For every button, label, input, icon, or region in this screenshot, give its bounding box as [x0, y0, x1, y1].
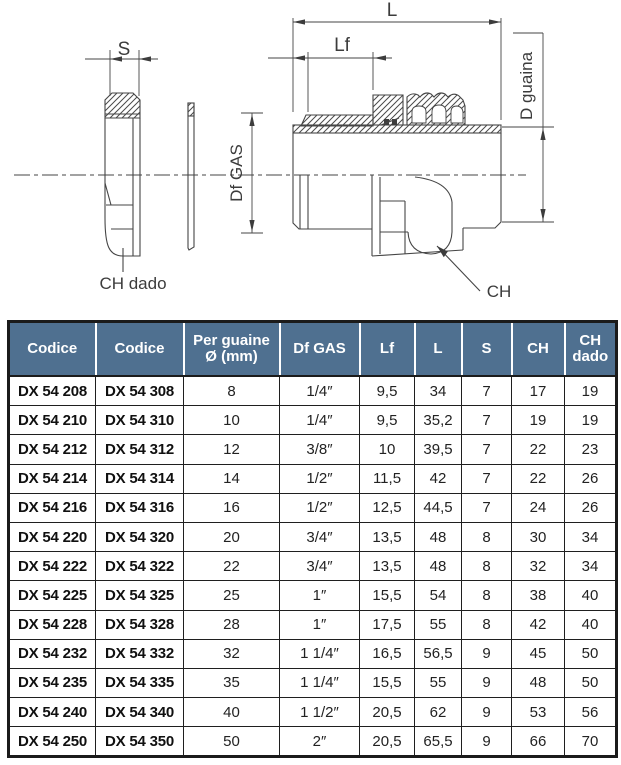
ch-dado-label: CH dado	[99, 274, 166, 293]
code-cell: DX 54 228	[9, 610, 96, 639]
value-cell: 20,5	[360, 727, 415, 757]
value-cell: 70	[565, 727, 617, 757]
value-cell: 19	[565, 376, 617, 406]
value-cell: 20,5	[360, 698, 415, 727]
code-cell: DX 54 232	[9, 639, 96, 668]
value-cell: 44,5	[415, 493, 462, 522]
code-cell: DX 54 335	[96, 668, 184, 697]
code-cell: DX 54 340	[96, 698, 184, 727]
table-row: DX 54 225DX 54 325251″15,55483840	[9, 581, 617, 610]
value-cell: 24	[512, 493, 565, 522]
value-cell: 55	[415, 668, 462, 697]
value-cell: 9	[462, 698, 512, 727]
value-cell: 8	[462, 522, 512, 551]
value-cell: 1/2″	[280, 464, 360, 493]
column-header-df-gas: Df GAS	[280, 322, 360, 377]
value-cell: 26	[565, 493, 617, 522]
value-cell: 19	[512, 406, 565, 435]
value-cell: 1 1/4″	[280, 639, 360, 668]
value-cell: 50	[565, 668, 617, 697]
value-cell: 22	[512, 435, 565, 464]
column-header-l: L	[415, 322, 462, 377]
flange-strip	[301, 115, 373, 126]
dim-df-gas-label: Df GAS	[227, 144, 246, 202]
value-cell: 39,5	[415, 435, 462, 464]
technical-drawing: S L Lf Df GAS D guaina CH CH dado	[0, 0, 621, 318]
value-cell: 56	[565, 698, 617, 727]
value-cell: 16,5	[360, 639, 415, 668]
value-cell: 7	[462, 406, 512, 435]
value-cell: 20	[184, 522, 280, 551]
value-cell: 8	[462, 581, 512, 610]
table-row: DX 54 228DX 54 328281″17,55584240	[9, 610, 617, 639]
code-cell: DX 54 222	[9, 552, 96, 581]
value-cell: 1/4″	[280, 376, 360, 406]
column-header-s: S	[462, 322, 512, 377]
value-cell: 1/2″	[280, 493, 360, 522]
table-row: DX 54 222DX 54 322223/4″13,54883234	[9, 552, 617, 581]
value-cell: 28	[184, 610, 280, 639]
code-cell: DX 54 328	[96, 610, 184, 639]
value-cell: 42	[512, 610, 565, 639]
code-cell: DX 54 320	[96, 522, 184, 551]
value-cell: 66	[512, 727, 565, 757]
value-cell: 65,5	[415, 727, 462, 757]
table-row: DX 54 210DX 54 310101/4″9,535,271919	[9, 406, 617, 435]
value-cell: 25	[184, 581, 280, 610]
value-cell: 38	[512, 581, 565, 610]
code-cell: DX 54 225	[9, 581, 96, 610]
value-cell: 3/8″	[280, 435, 360, 464]
value-cell: 1 1/2″	[280, 698, 360, 727]
value-cell: 7	[462, 376, 512, 406]
value-cell: 7	[462, 493, 512, 522]
value-cell: 19	[565, 406, 617, 435]
column-header-per-guaine: Per guaine Ø (mm)	[184, 322, 280, 377]
table-body: DX 54 208DX 54 30881/4″9,53471719DX 54 2…	[9, 376, 617, 757]
value-cell: 48	[415, 522, 462, 551]
value-cell: 1/4″	[280, 406, 360, 435]
code-cell: DX 54 316	[96, 493, 184, 522]
column-header-ch-dado: CH dado	[565, 322, 617, 377]
dimension-arrows	[110, 19, 546, 257]
code-cell: DX 54 216	[9, 493, 96, 522]
value-cell: 22	[184, 552, 280, 581]
value-cell: 9	[462, 668, 512, 697]
code-cell: DX 54 312	[96, 435, 184, 464]
dim-l-label: L	[387, 0, 398, 21]
code-cell: DX 54 208	[9, 376, 96, 406]
code-cell: DX 54 250	[9, 727, 96, 757]
gland-drawing-svg: S L Lf Df GAS D guaina CH CH dado	[0, 0, 621, 318]
value-cell: 17	[512, 376, 565, 406]
code-cell: DX 54 308	[96, 376, 184, 406]
value-cell: 9,5	[360, 406, 415, 435]
value-cell: 32	[184, 639, 280, 668]
value-cell: 13,5	[360, 522, 415, 551]
value-cell: 8	[462, 552, 512, 581]
nut-body	[105, 118, 140, 256]
value-cell: 8	[462, 610, 512, 639]
code-cell: DX 54 325	[96, 581, 184, 610]
value-cell: 15,5	[360, 668, 415, 697]
catalog-page: S L Lf Df GAS D guaina CH CH dado Codice…	[0, 0, 621, 765]
dim-lf-label: Lf	[334, 35, 351, 56]
value-cell: 40	[184, 698, 280, 727]
table-row: DX 54 212DX 54 312123/8″1039,572223	[9, 435, 617, 464]
value-cell: 10	[360, 435, 415, 464]
column-header-codice-2: Codice	[96, 322, 184, 377]
value-cell: 56,5	[415, 639, 462, 668]
value-cell: 14	[184, 464, 280, 493]
value-cell: 3/4″	[280, 552, 360, 581]
value-cell: 7	[462, 464, 512, 493]
value-cell: 1 1/4″	[280, 668, 360, 697]
value-cell: 34	[415, 376, 462, 406]
table-row: DX 54 250DX 54 350502″20,565,596670	[9, 727, 617, 757]
table-row: DX 54 216DX 54 316161/2″12,544,572426	[9, 493, 617, 522]
value-cell: 45	[512, 639, 565, 668]
value-cell: 16	[184, 493, 280, 522]
dim-d-guaina-label: D guaina	[517, 51, 536, 120]
table-row: DX 54 214DX 54 314141/2″11,54272226	[9, 464, 617, 493]
code-cell: DX 54 235	[9, 668, 96, 697]
code-cell: DX 54 220	[9, 522, 96, 551]
ch-label: CH	[487, 282, 512, 301]
value-cell: 40	[565, 581, 617, 610]
code-cell: DX 54 240	[9, 698, 96, 727]
value-cell: 12,5	[360, 493, 415, 522]
value-cell: 7	[462, 435, 512, 464]
value-cell: 17,5	[360, 610, 415, 639]
value-cell: 55	[415, 610, 462, 639]
value-cell: 30	[512, 522, 565, 551]
value-cell: 40	[565, 610, 617, 639]
value-cell: 62	[415, 698, 462, 727]
value-cell: 42	[415, 464, 462, 493]
value-cell: 3/4″	[280, 522, 360, 551]
column-header-ch: CH	[512, 322, 565, 377]
value-cell: 34	[565, 522, 617, 551]
washer-outline	[188, 103, 194, 250]
dimension-table: Codice Codice Per guaine Ø (mm) Df GAS L…	[7, 320, 618, 758]
value-cell: 35,2	[415, 406, 462, 435]
value-cell: 9,5	[360, 376, 415, 406]
value-cell: 9	[462, 639, 512, 668]
value-cell: 34	[565, 552, 617, 581]
value-cell: 9	[462, 727, 512, 757]
code-cell: DX 54 314	[96, 464, 184, 493]
column-header-codice-1: Codice	[9, 322, 96, 377]
code-cell: DX 54 322	[96, 552, 184, 581]
value-cell: 15,5	[360, 581, 415, 610]
value-cell: 23	[565, 435, 617, 464]
value-cell: 53	[512, 698, 565, 727]
value-cell: 54	[415, 581, 462, 610]
code-cell: DX 54 214	[9, 464, 96, 493]
value-cell: 48	[512, 668, 565, 697]
value-cell: 10	[184, 406, 280, 435]
table-row: DX 54 240DX 54 340401 1/2″20,56295356	[9, 698, 617, 727]
table-row: DX 54 232DX 54 332321 1/4″16,556,594550	[9, 639, 617, 668]
code-cell: DX 54 332	[96, 639, 184, 668]
column-header-lf: Lf	[360, 322, 415, 377]
washer-hatch	[188, 103, 194, 116]
value-cell: 1″	[280, 610, 360, 639]
code-cell: DX 54 212	[9, 435, 96, 464]
table-row: DX 54 235DX 54 335351 1/4″15,55594850	[9, 668, 617, 697]
value-cell: 22	[512, 464, 565, 493]
value-cell: 50	[565, 639, 617, 668]
value-cell: 50	[184, 727, 280, 757]
value-cell: 48	[415, 552, 462, 581]
dim-s-label: S	[118, 39, 131, 60]
value-cell: 13,5	[360, 552, 415, 581]
value-cell: 32	[512, 552, 565, 581]
value-cell: 35	[184, 668, 280, 697]
table-header-row: Codice Codice Per guaine Ø (mm) Df GAS L…	[9, 322, 617, 377]
code-cell: DX 54 310	[96, 406, 184, 435]
value-cell: 12	[184, 435, 280, 464]
table-row: DX 54 208DX 54 30881/4″9,53471719	[9, 376, 617, 406]
value-cell: 1″	[280, 581, 360, 610]
code-cell: DX 54 350	[96, 727, 184, 757]
table-row: DX 54 220DX 54 320203/4″13,54883034	[9, 522, 617, 551]
code-cell: DX 54 210	[9, 406, 96, 435]
value-cell: 26	[565, 464, 617, 493]
value-cell: 11,5	[360, 464, 415, 493]
value-cell: 8	[184, 376, 280, 406]
value-cell: 2″	[280, 727, 360, 757]
